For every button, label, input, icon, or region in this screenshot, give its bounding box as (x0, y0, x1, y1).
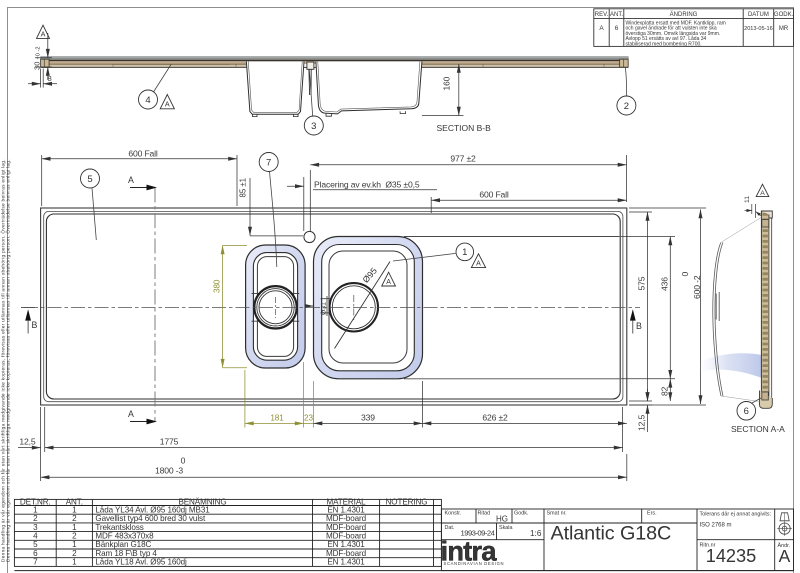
svg-text:2013-05-16: 2013-05-16 (744, 26, 773, 32)
svg-text:8: 8 (48, 74, 52, 83)
svg-text:600 -2: 600 -2 (692, 275, 702, 299)
svg-text:600 Fall: 600 Fall (128, 148, 158, 158)
svg-text:1: 1 (72, 558, 77, 567)
svg-text:ANT.: ANT. (610, 12, 623, 18)
svg-text:A: A (476, 261, 481, 268)
svg-text:575: 575 (637, 276, 647, 290)
svg-text:2: 2 (72, 514, 77, 523)
svg-text:A: A (128, 175, 134, 185)
svg-text:600 Fall: 600 Fall (479, 189, 509, 199)
svg-text:MDF-board: MDF-board (326, 532, 366, 541)
svg-text:MDF-board: MDF-board (326, 514, 366, 523)
svg-text:Låda YL18 Avl. Ø95 160dj: Låda YL18 Avl. Ø95 160dj (95, 558, 187, 567)
svg-text:A: A (41, 30, 46, 39)
svg-text:EN 1.4301: EN 1.4301 (327, 558, 365, 567)
svg-text:Tolerans där ej annat angivits: Tolerans där ej annat angivits: (700, 512, 772, 518)
svg-text:GODK.: GODK. (774, 12, 794, 18)
svg-text:0: 0 (680, 272, 690, 277)
svg-text:Placering av ev.kh Ø35 ±0,5: Placering av ev.kh Ø35 ±0,5 (314, 179, 420, 189)
svg-text:6: 6 (33, 549, 38, 558)
svg-text:5: 5 (33, 540, 38, 549)
svg-text:Ritad: Ritad (478, 511, 491, 517)
svg-text:Konstr.: Konstr. (445, 511, 462, 517)
svg-text:3: 3 (311, 121, 316, 132)
svg-text:339: 339 (361, 413, 375, 423)
svg-text:14235: 14235 (706, 546, 757, 566)
svg-text:4: 4 (145, 95, 150, 106)
svg-text:6: 6 (744, 406, 749, 417)
svg-text:EN 1.4301: EN 1.4301 (327, 505, 365, 514)
svg-text:stabiliserad med bombering R70: stabiliserad med bombering R700. (626, 41, 702, 47)
svg-text:Smat nr.: Smat nr. (547, 511, 567, 517)
svg-text:1: 1 (72, 523, 77, 532)
svg-text:SCANDINAVIAN DESIGN: SCANDINAVIAN DESIGN (444, 561, 505, 566)
svg-text:Gavellist typ4 600 bred 30 vul: Gavellist typ4 600 bred 30 vulst (95, 514, 206, 523)
svg-text:Dat.: Dat. (445, 525, 455, 531)
svg-text:Trekantskloss: Trekantskloss (95, 523, 143, 532)
svg-text:380: 380 (213, 279, 222, 293)
svg-text:Ers.: Ers. (647, 511, 657, 517)
svg-text:11: 11 (744, 196, 751, 203)
svg-text:EN 1.4301: EN 1.4301 (327, 540, 365, 549)
svg-text:7: 7 (266, 157, 271, 168)
svg-text:82: 82 (659, 386, 669, 396)
svg-text:HG: HG (496, 515, 508, 524)
svg-text:B: B (636, 321, 642, 331)
svg-text:A: A (779, 546, 791, 566)
svg-text:ÄNDRING: ÄNDRING (670, 11, 698, 18)
svg-text:Ram 18 F\B typ 4: Ram 18 F\B typ 4 (95, 549, 157, 558)
svg-text:1800 -3: 1800 -3 (155, 466, 183, 476)
svg-text:12,5: 12,5 (19, 437, 35, 447)
svg-text:1: 1 (33, 505, 38, 514)
svg-text:Låda YL34 Avl. Ø95 160dj MB31: Låda YL34 Avl. Ø95 160dj MB31 (95, 505, 210, 514)
svg-text:A: A (165, 100, 170, 109)
svg-text:977 ±2: 977 ±2 (450, 154, 476, 164)
svg-text:3: 3 (33, 523, 38, 532)
svg-text:Denna handling är vår egendom: Denna handling är vår egendom och får ut… (0, 159, 7, 562)
svg-text:REV.: REV. (595, 12, 609, 18)
svg-text:DATUM: DATUM (748, 12, 769, 18)
svg-text:1: 1 (72, 540, 77, 549)
svg-text:1775: 1775 (160, 437, 179, 447)
svg-text:B: B (32, 320, 38, 330)
svg-text:2: 2 (33, 514, 38, 523)
svg-text:2: 2 (72, 549, 77, 558)
svg-text:1: 1 (72, 505, 77, 514)
svg-text:Bänkplan G18C: Bänkplan G18C (95, 540, 151, 549)
svg-text:A: A (128, 409, 134, 419)
svg-text:0: 0 (181, 456, 186, 466)
svg-text:23: 23 (304, 414, 313, 423)
svg-text:1:6: 1:6 (530, 529, 542, 538)
svg-text:MDF 483x370x8: MDF 483x370x8 (95, 532, 154, 541)
svg-text:160: 160 (442, 76, 452, 90)
svg-text:SECTION A-A: SECTION A-A (731, 424, 785, 434)
svg-text:436: 436 (659, 277, 669, 291)
svg-text:2: 2 (624, 101, 629, 112)
svg-text:MDF-board: MDF-board (326, 523, 366, 532)
svg-text:4: 4 (33, 532, 38, 541)
svg-text:Skala: Skala (499, 525, 513, 531)
svg-text:181: 181 (270, 414, 284, 423)
svg-text:626 ±2: 626 ±2 (482, 413, 508, 423)
svg-text:2: 2 (72, 532, 77, 541)
svg-text:ISO 2768 m: ISO 2768 m (700, 523, 732, 529)
svg-text:Ø31: Ø31 (321, 302, 328, 315)
svg-text:Denna handling är vår egendom: Denna handling är vår egendom och får ut… (5, 159, 12, 562)
svg-text:NOTERING: NOTERING (386, 498, 428, 507)
svg-text:A: A (760, 190, 765, 197)
svg-text:MDF-board: MDF-board (326, 549, 366, 558)
svg-text:7: 7 (33, 558, 38, 567)
svg-text:6: 6 (615, 25, 619, 32)
svg-text:A: A (599, 25, 604, 32)
svg-text:1: 1 (462, 247, 467, 258)
svg-text:Godk.: Godk. (514, 511, 528, 517)
svg-text:85 ±1: 85 ±1 (239, 178, 248, 197)
svg-text:5: 5 (87, 174, 92, 185)
svg-text:12,5: 12,5 (637, 415, 647, 431)
svg-text:A: A (386, 279, 391, 286)
svg-text:MR: MR (779, 26, 789, 32)
svg-text:SECTION B-B: SECTION B-B (437, 123, 492, 133)
svg-text:Atlantic G18C: Atlantic G18C (551, 523, 672, 545)
